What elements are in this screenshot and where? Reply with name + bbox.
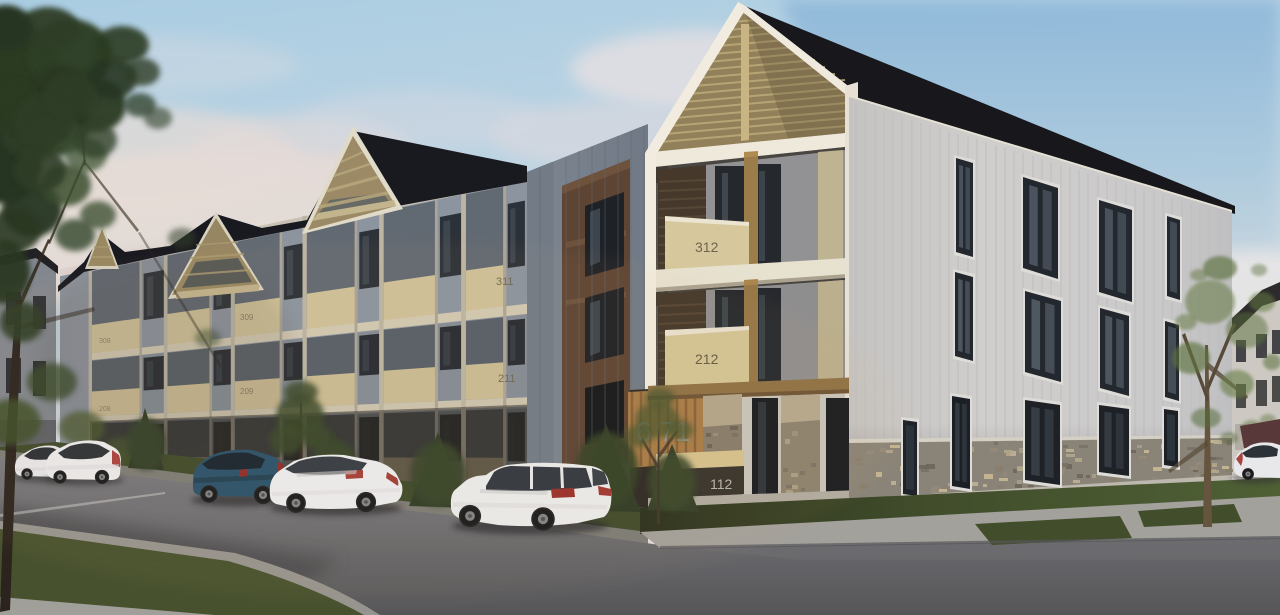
svg-text:312: 312 — [695, 239, 719, 255]
